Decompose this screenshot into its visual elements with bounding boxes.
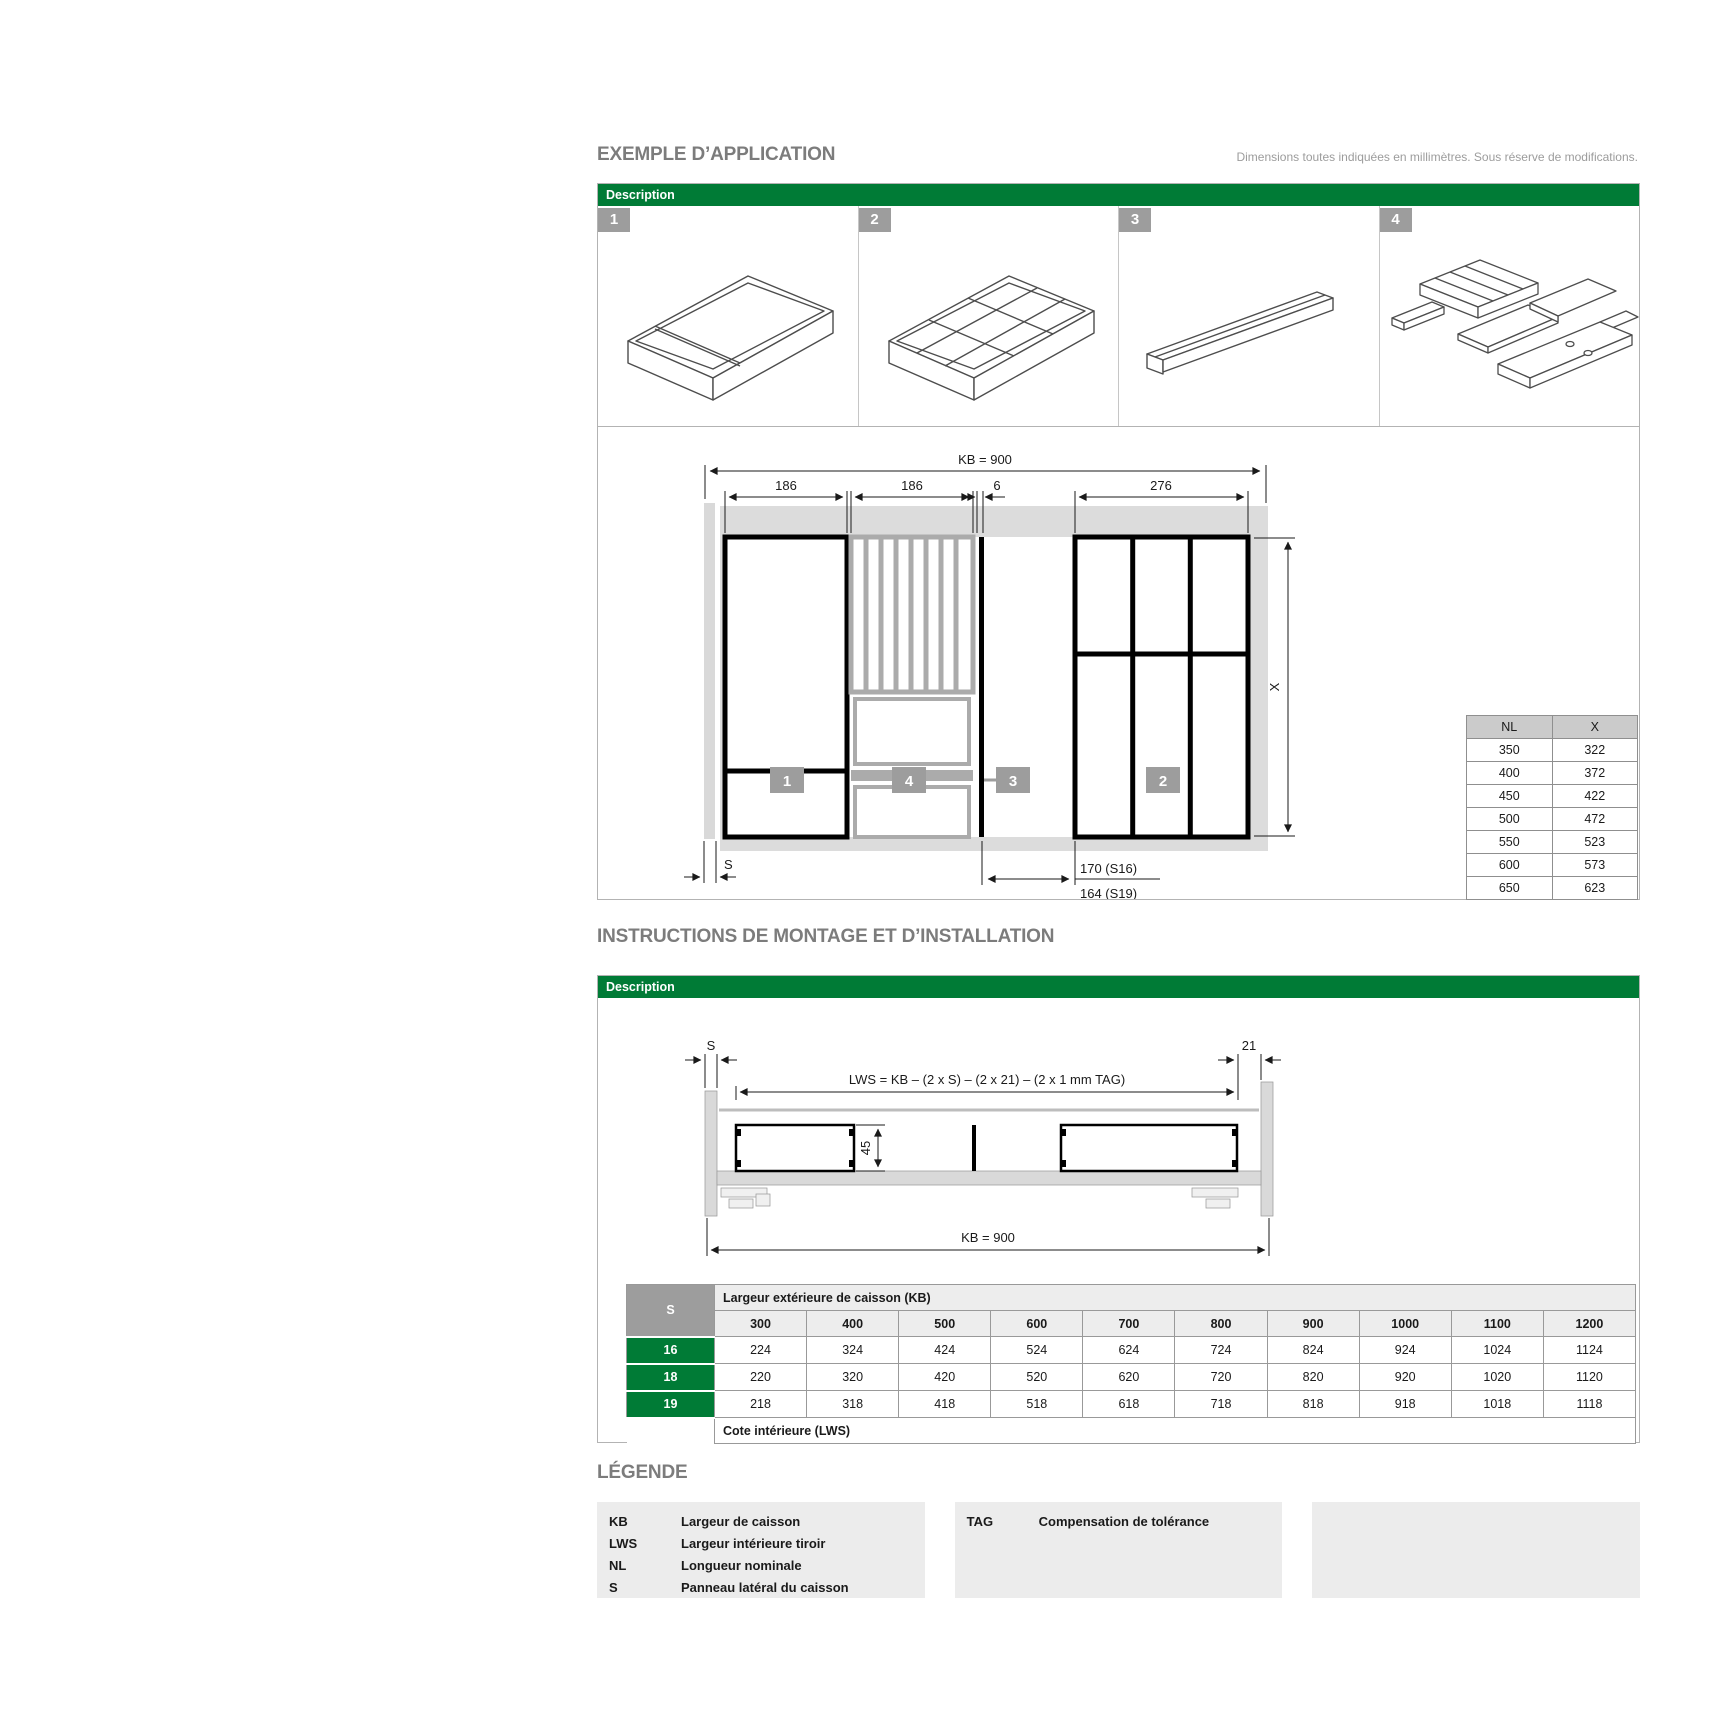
panel-item-1: 1 — [598, 206, 859, 426]
lws-cell: 818 — [1267, 1391, 1359, 1418]
legend-item: KBLargeur de caisson — [609, 1511, 925, 1533]
nlx-cell: 322 — [1552, 739, 1638, 762]
lws-cell: 224 — [715, 1337, 807, 1364]
legend-item: TAGCompensation de tolérance — [967, 1511, 1283, 1533]
lws-cell: 624 — [1083, 1337, 1175, 1364]
lws-cell: 1020 — [1451, 1364, 1543, 1391]
tray-cross-sections — [736, 1125, 1237, 1171]
nlx-cell: 600 — [1467, 854, 1553, 877]
panel-badge-4: 4 — [1380, 208, 1412, 232]
lws-cell: 518 — [991, 1391, 1083, 1418]
lws-cell: 1018 — [1451, 1391, 1543, 1418]
kb-col: 1000 — [1359, 1311, 1451, 1337]
table-row: 600573 — [1467, 854, 1638, 877]
panel-badge-3: 3 — [1119, 208, 1151, 232]
kb-col: 600 — [991, 1311, 1083, 1337]
panel-item-2: 2 — [859, 206, 1120, 426]
table-row: 19 218 318 418 518 618 718 818 918 1018 … — [627, 1391, 1636, 1418]
legend-panel-3 — [1312, 1502, 1640, 1598]
cross-section-drawing: S 21 LWS = KB – (2 x S) – (2 x 21) – (2 … — [598, 998, 1641, 1284]
description-bar-2: Description — [598, 976, 1639, 998]
dim-s16-label: 170 (S16) — [1080, 861, 1137, 876]
table-row: 550523 — [1467, 831, 1638, 854]
xsec-s-label: S — [707, 1038, 716, 1053]
lws-cell: 524 — [991, 1337, 1083, 1364]
s-value-cell: 16 — [627, 1337, 715, 1364]
legend-panel-1: KBLargeur de caisson LWSLargeur intérieu… — [597, 1502, 925, 1598]
item3-rail — [979, 537, 984, 837]
section2-title: INSTRUCTIONS DE MONTAGE ET D’INSTALLATIO… — [597, 926, 1054, 948]
nlx-cell: 500 — [1467, 808, 1553, 831]
lws-cell: 820 — [1267, 1364, 1359, 1391]
lws-cell: 1120 — [1543, 1364, 1635, 1391]
kb-col: 400 — [807, 1311, 899, 1337]
tray-isometric-drawing — [598, 206, 858, 426]
application-example-box: Description 1 2 — [597, 183, 1640, 900]
lws-cell: 824 — [1267, 1337, 1359, 1364]
legend-key: LWS — [609, 1533, 681, 1555]
nlx-header-nl: NL — [1467, 716, 1553, 739]
table-row: 350322 — [1467, 739, 1638, 762]
table-row: 500472 — [1467, 808, 1638, 831]
legend-key: NL — [609, 1555, 681, 1577]
lws-cell: 724 — [1175, 1337, 1267, 1364]
dim-s19-label: 164 (S19) — [1080, 886, 1137, 899]
table-row: 300 400 500 600 700 800 900 1000 1100 12… — [627, 1311, 1636, 1337]
kb-col: 1200 — [1543, 1311, 1635, 1337]
cutlery-insert-isometric-drawing — [859, 206, 1119, 426]
nlx-cell: 550 — [1467, 831, 1553, 854]
legend-key: TAG — [967, 1511, 1039, 1533]
lws-cell: 418 — [899, 1391, 991, 1418]
legend-item: LWSLargeur intérieure tiroir — [609, 1533, 925, 1555]
lws-cell: 1124 — [1543, 1337, 1635, 1364]
legend-value: Panneau latéral du caisson — [681, 1577, 849, 1599]
dim-186a-label: 186 — [775, 478, 797, 493]
lws-cell: 218 — [715, 1391, 807, 1418]
legend-item: SPanneau latéral du caisson — [609, 1577, 925, 1599]
nlx-cell: 523 — [1552, 831, 1638, 854]
lws-cell: 520 — [991, 1364, 1083, 1391]
legend-title: LÉGENDE — [597, 1462, 687, 1484]
nlx-cell: 372 — [1552, 762, 1638, 785]
lws-cell: 318 — [807, 1391, 899, 1418]
table-row: 18 220 320 420 520 620 720 820 920 1020 … — [627, 1364, 1636, 1391]
dim-186b-label: 186 — [901, 478, 923, 493]
dim-276-label: 276 — [1150, 478, 1172, 493]
lws-cell: 424 — [899, 1337, 991, 1364]
lws-cell: 1118 — [1543, 1391, 1635, 1418]
nlx-cell: 472 — [1552, 808, 1638, 831]
nlx-cell: 350 — [1467, 739, 1553, 762]
nl-x-table: NL X 350322 400372 450422 500472 550523 … — [1466, 715, 1638, 900]
legend-key: S — [609, 1577, 681, 1599]
nlx-cell: 450 — [1467, 785, 1553, 808]
table-row: NL X — [1467, 716, 1638, 739]
table-row: S Largeur extérieure de caisson (KB) — [627, 1285, 1636, 1311]
lws-cell: 924 — [1359, 1337, 1451, 1364]
kb-header-cell: Largeur extérieure de caisson (KB) — [715, 1285, 1636, 1311]
dim-s-label: S — [724, 857, 733, 872]
lws-cell: 918 — [1359, 1391, 1451, 1418]
divider-rail-isometric-drawing — [1119, 206, 1379, 426]
cross-section-area: S 21 LWS = KB – (2 x S) – (2 x 21) – (2 … — [598, 998, 1639, 1284]
table-row: Cote intérieure (LWS) — [627, 1418, 1636, 1444]
lws-formula: LWS = KB – (2 x S) – (2 x 21) – (2 x 1 m… — [849, 1072, 1125, 1087]
dim-x-label: X — [1267, 682, 1282, 691]
lws-cell: 920 — [1359, 1364, 1451, 1391]
page-content: EXEMPLE D’APPLICATION Dimensions toutes … — [597, 0, 1640, 1733]
xsec-kb-label: KB = 900 — [961, 1230, 1015, 1245]
legend-key: KB — [609, 1511, 681, 1533]
panel-item-4: 4 — [1380, 206, 1640, 426]
nlx-header-x: X — [1552, 716, 1638, 739]
lws-cell: 320 — [807, 1364, 899, 1391]
legend-value: Largeur de caisson — [681, 1511, 800, 1533]
lws-cell: 618 — [1083, 1391, 1175, 1418]
dim-6-label: 6 — [993, 478, 1000, 493]
drawing-badge-4: 4 — [905, 773, 914, 790]
table-row: 450422 — [1467, 785, 1638, 808]
kb-col: 900 — [1267, 1311, 1359, 1337]
legend-value: Largeur intérieure tiroir — [681, 1533, 825, 1555]
dim-kb-label: KB = 900 — [958, 452, 1012, 467]
kb-col: 700 — [1083, 1311, 1175, 1337]
legend-value: Compensation de tolérance — [1039, 1511, 1209, 1533]
drawing-badge-1: 1 — [783, 773, 791, 790]
kb-col: 800 — [1175, 1311, 1267, 1337]
kb-col: 1100 — [1451, 1311, 1543, 1337]
panel-set-isometric-drawing — [1380, 206, 1640, 426]
s-header-cell: S — [627, 1285, 715, 1337]
lws-footer-cell: Cote intérieure (LWS) — [715, 1418, 1636, 1444]
panel-badge-2: 2 — [859, 208, 891, 232]
s-value-cell: 18 — [627, 1364, 715, 1391]
nlx-cell: 422 — [1552, 785, 1638, 808]
empty-cell — [627, 1418, 715, 1444]
lws-cell: 420 — [899, 1364, 991, 1391]
nlx-cell: 650 — [1467, 877, 1553, 900]
installation-box: Description — [597, 975, 1640, 1443]
xsec-45-label: 45 — [858, 1141, 873, 1155]
nlx-cell: 573 — [1552, 854, 1638, 877]
table-row: 16 224 324 424 524 624 724 824 924 1024 … — [627, 1337, 1636, 1364]
lws-cell: 718 — [1175, 1391, 1267, 1418]
drawing-badge-3: 3 — [1009, 773, 1017, 790]
section1-title: EXEMPLE D’APPLICATION — [597, 144, 835, 166]
drawing-badge-2: 2 — [1159, 773, 1167, 790]
table-row: 650623 — [1467, 877, 1638, 900]
dimensions-note: Dimensions toutes indiquées en millimètr… — [1236, 150, 1638, 164]
xsec-21-label: 21 — [1242, 1038, 1256, 1053]
legend: KBLargeur de caisson LWSLargeur intérieu… — [597, 1502, 1640, 1598]
kb-col: 500 — [899, 1311, 991, 1337]
panel-badge-1: 1 — [598, 208, 630, 232]
s-value-cell: 19 — [627, 1391, 715, 1418]
kb-col: 300 — [715, 1311, 807, 1337]
nlx-cell: 400 — [1467, 762, 1553, 785]
lws-cell: 720 — [1175, 1364, 1267, 1391]
lws-cell: 324 — [807, 1337, 899, 1364]
table-row: 400372 — [1467, 762, 1638, 785]
lws-cell: 620 — [1083, 1364, 1175, 1391]
legend-item: NLLongueur nominale — [609, 1555, 925, 1577]
component-panels: 1 2 — [598, 206, 1639, 427]
plan-view-area: 1 4 3 2 — [598, 427, 1639, 899]
lws-cell: 1024 — [1451, 1337, 1543, 1364]
panel-item-3: 3 — [1119, 206, 1380, 426]
kb-lws-table: S Largeur extérieure de caisson (KB) 300… — [626, 1284, 1636, 1444]
description-bar-1: Description — [598, 184, 1639, 206]
legend-panel-2: TAGCompensation de tolérance — [955, 1502, 1283, 1598]
lws-cell: 220 — [715, 1364, 807, 1391]
legend-value: Longueur nominale — [681, 1555, 802, 1577]
nlx-cell: 623 — [1552, 877, 1638, 900]
